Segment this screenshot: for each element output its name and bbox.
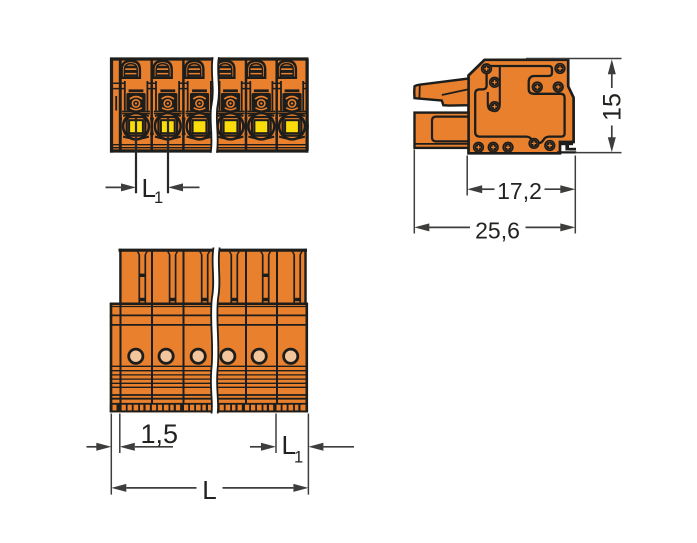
svg-text:1,5: 1,5 — [141, 419, 179, 449]
svg-text:25,6: 25,6 — [475, 217, 520, 243]
svg-text:17,2: 17,2 — [497, 178, 542, 204]
svg-text:1: 1 — [294, 448, 303, 466]
svg-text:L: L — [202, 475, 216, 505]
svg-text:15: 15 — [598, 93, 626, 121]
svg-text:1: 1 — [154, 189, 163, 207]
